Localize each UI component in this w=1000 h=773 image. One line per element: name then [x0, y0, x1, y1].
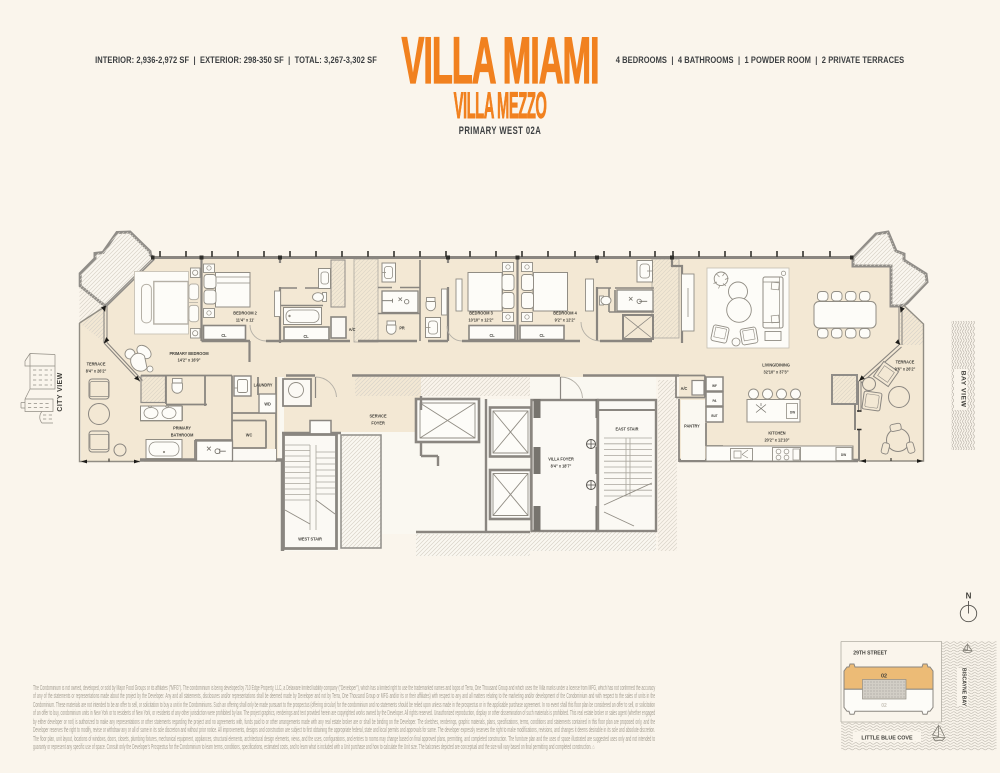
svg-text:CL: CL: [221, 332, 227, 337]
svg-text:CITY VIEW: CITY VIEW: [57, 372, 64, 411]
svg-text:VILLA FOYER: VILLA FOYER: [548, 456, 574, 461]
svg-text:TERRACE: TERRACE: [896, 359, 915, 364]
svg-text:PA: PA: [712, 399, 717, 403]
svg-text:DW: DW: [790, 410, 796, 414]
svg-text:LIVING/DINING: LIVING/DINING: [762, 362, 790, 367]
svg-text:8'4" x 18'7": 8'4" x 18'7": [551, 463, 572, 468]
svg-text:PRIMARY: PRIMARY: [173, 425, 191, 430]
svg-text:WF: WF: [712, 384, 717, 388]
svg-text:A/C: A/C: [681, 386, 688, 391]
svg-text:14'2" x 16'9": 14'2" x 16'9": [178, 357, 201, 362]
svg-text:8'4" x 26'2": 8'4" x 26'2": [86, 368, 107, 373]
svg-text:DW: DW: [841, 453, 847, 457]
svg-text:BATHROOM: BATHROOM: [171, 432, 194, 437]
svg-text:11'4" x 11': 11'4" x 11': [236, 317, 254, 322]
svg-text:BEDROOM 4: BEDROOM 4: [553, 310, 577, 315]
svg-text:WD: WD: [264, 401, 270, 406]
svg-text:BISCAYNE BAY: BISCAYNE BAY: [961, 668, 967, 707]
svg-text:A/C: A/C: [349, 327, 356, 332]
svg-text:BAY VIEW: BAY VIEW: [960, 371, 967, 408]
svg-text:BUT: BUT: [711, 414, 717, 418]
svg-text:PRIMARY BEDROOM: PRIMARY BEDROOM: [169, 350, 209, 355]
svg-text:BEDROOM 3: BEDROOM 3: [469, 310, 493, 315]
svg-text:29TH STREET: 29TH STREET: [853, 650, 888, 656]
svg-text:CL: CL: [303, 334, 309, 339]
svg-text:9'2" x 12'2": 9'2" x 12'2": [555, 317, 576, 322]
svg-text:WEST STAIR: WEST STAIR: [298, 536, 322, 541]
svg-text:CL: CL: [489, 332, 495, 337]
svg-text:EAST STAIR: EAST STAIR: [616, 426, 639, 431]
svg-text:LITTLE BLUE COVE: LITTLE BLUE COVE: [861, 736, 913, 742]
svg-text:BEDROOM 2: BEDROOM 2: [233, 310, 257, 315]
svg-text:KITCHEN: KITCHEN: [768, 430, 785, 435]
svg-text:02: 02: [881, 703, 887, 709]
svg-text:9'6" x 26'2": 9'6" x 26'2": [895, 366, 916, 371]
svg-text:02: 02: [881, 674, 887, 680]
svg-text:32'10" x 37'3": 32'10" x 37'3": [764, 369, 789, 374]
svg-text:N: N: [966, 592, 972, 601]
svg-text:CL: CL: [539, 332, 545, 337]
svg-text:SERVICE: SERVICE: [370, 413, 387, 418]
svg-text:TERRACE: TERRACE: [87, 361, 106, 366]
svg-text:LAUNDRY: LAUNDRY: [254, 382, 273, 387]
svg-text:10'10" x 12'2": 10'10" x 12'2": [468, 317, 493, 322]
svg-text:WC: WC: [246, 432, 252, 437]
svg-text:20'2" x 12'10": 20'2" x 12'10": [764, 437, 789, 442]
svg-text:PANTRY: PANTRY: [684, 423, 700, 428]
svg-text:FOYER: FOYER: [371, 420, 384, 425]
svg-text:PR: PR: [399, 325, 404, 330]
